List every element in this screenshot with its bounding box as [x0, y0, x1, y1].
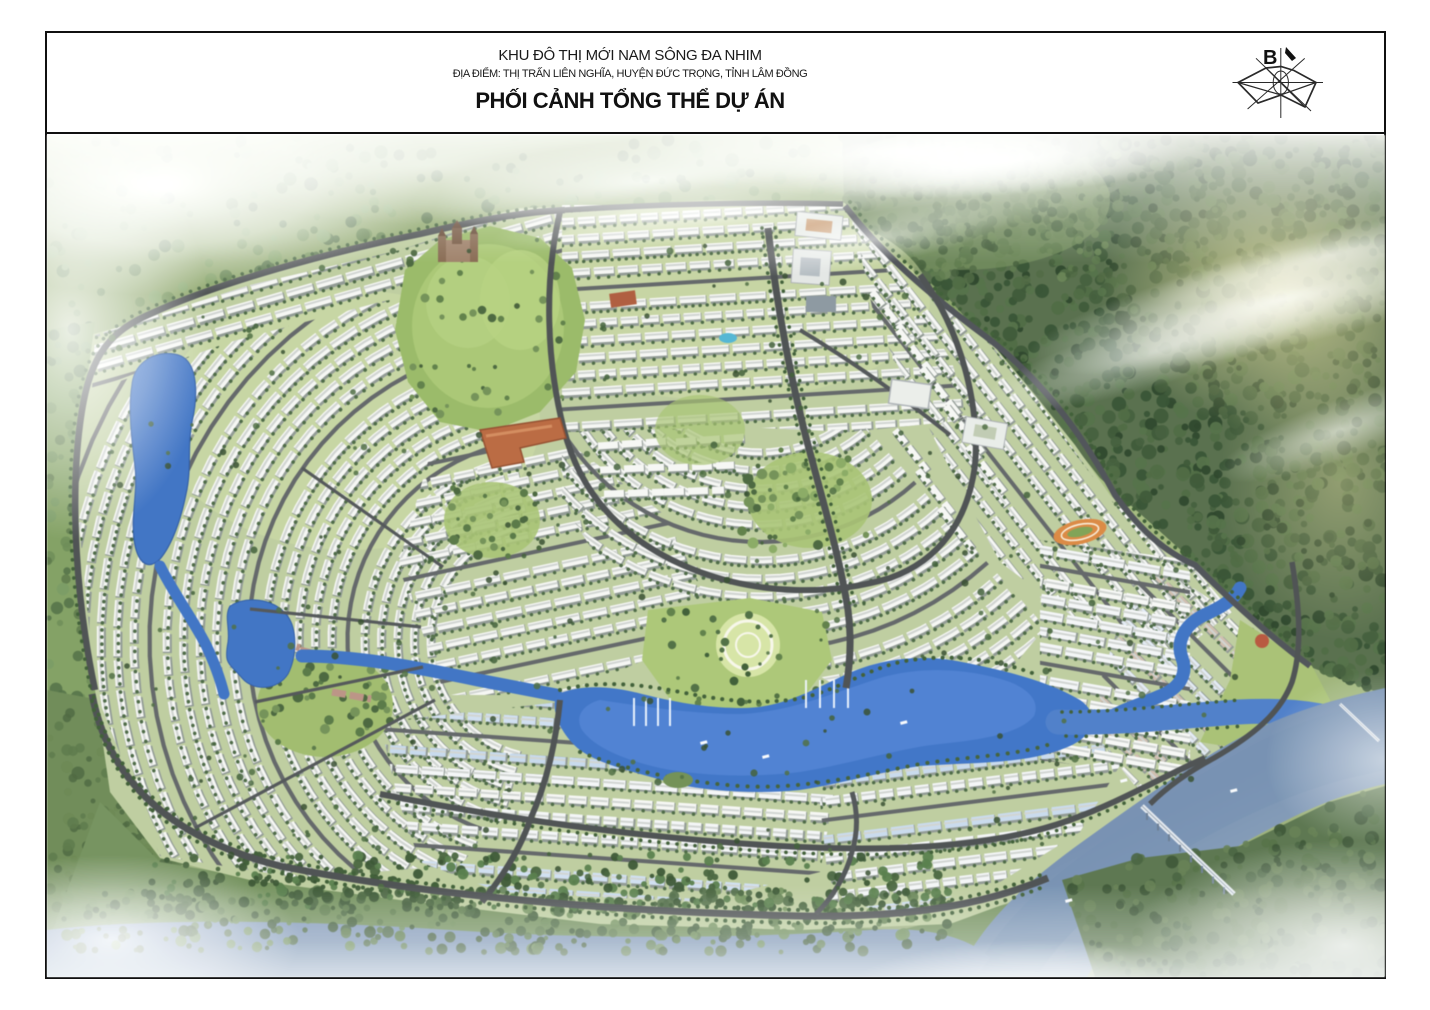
svg-text:B: B [1263, 47, 1277, 69]
